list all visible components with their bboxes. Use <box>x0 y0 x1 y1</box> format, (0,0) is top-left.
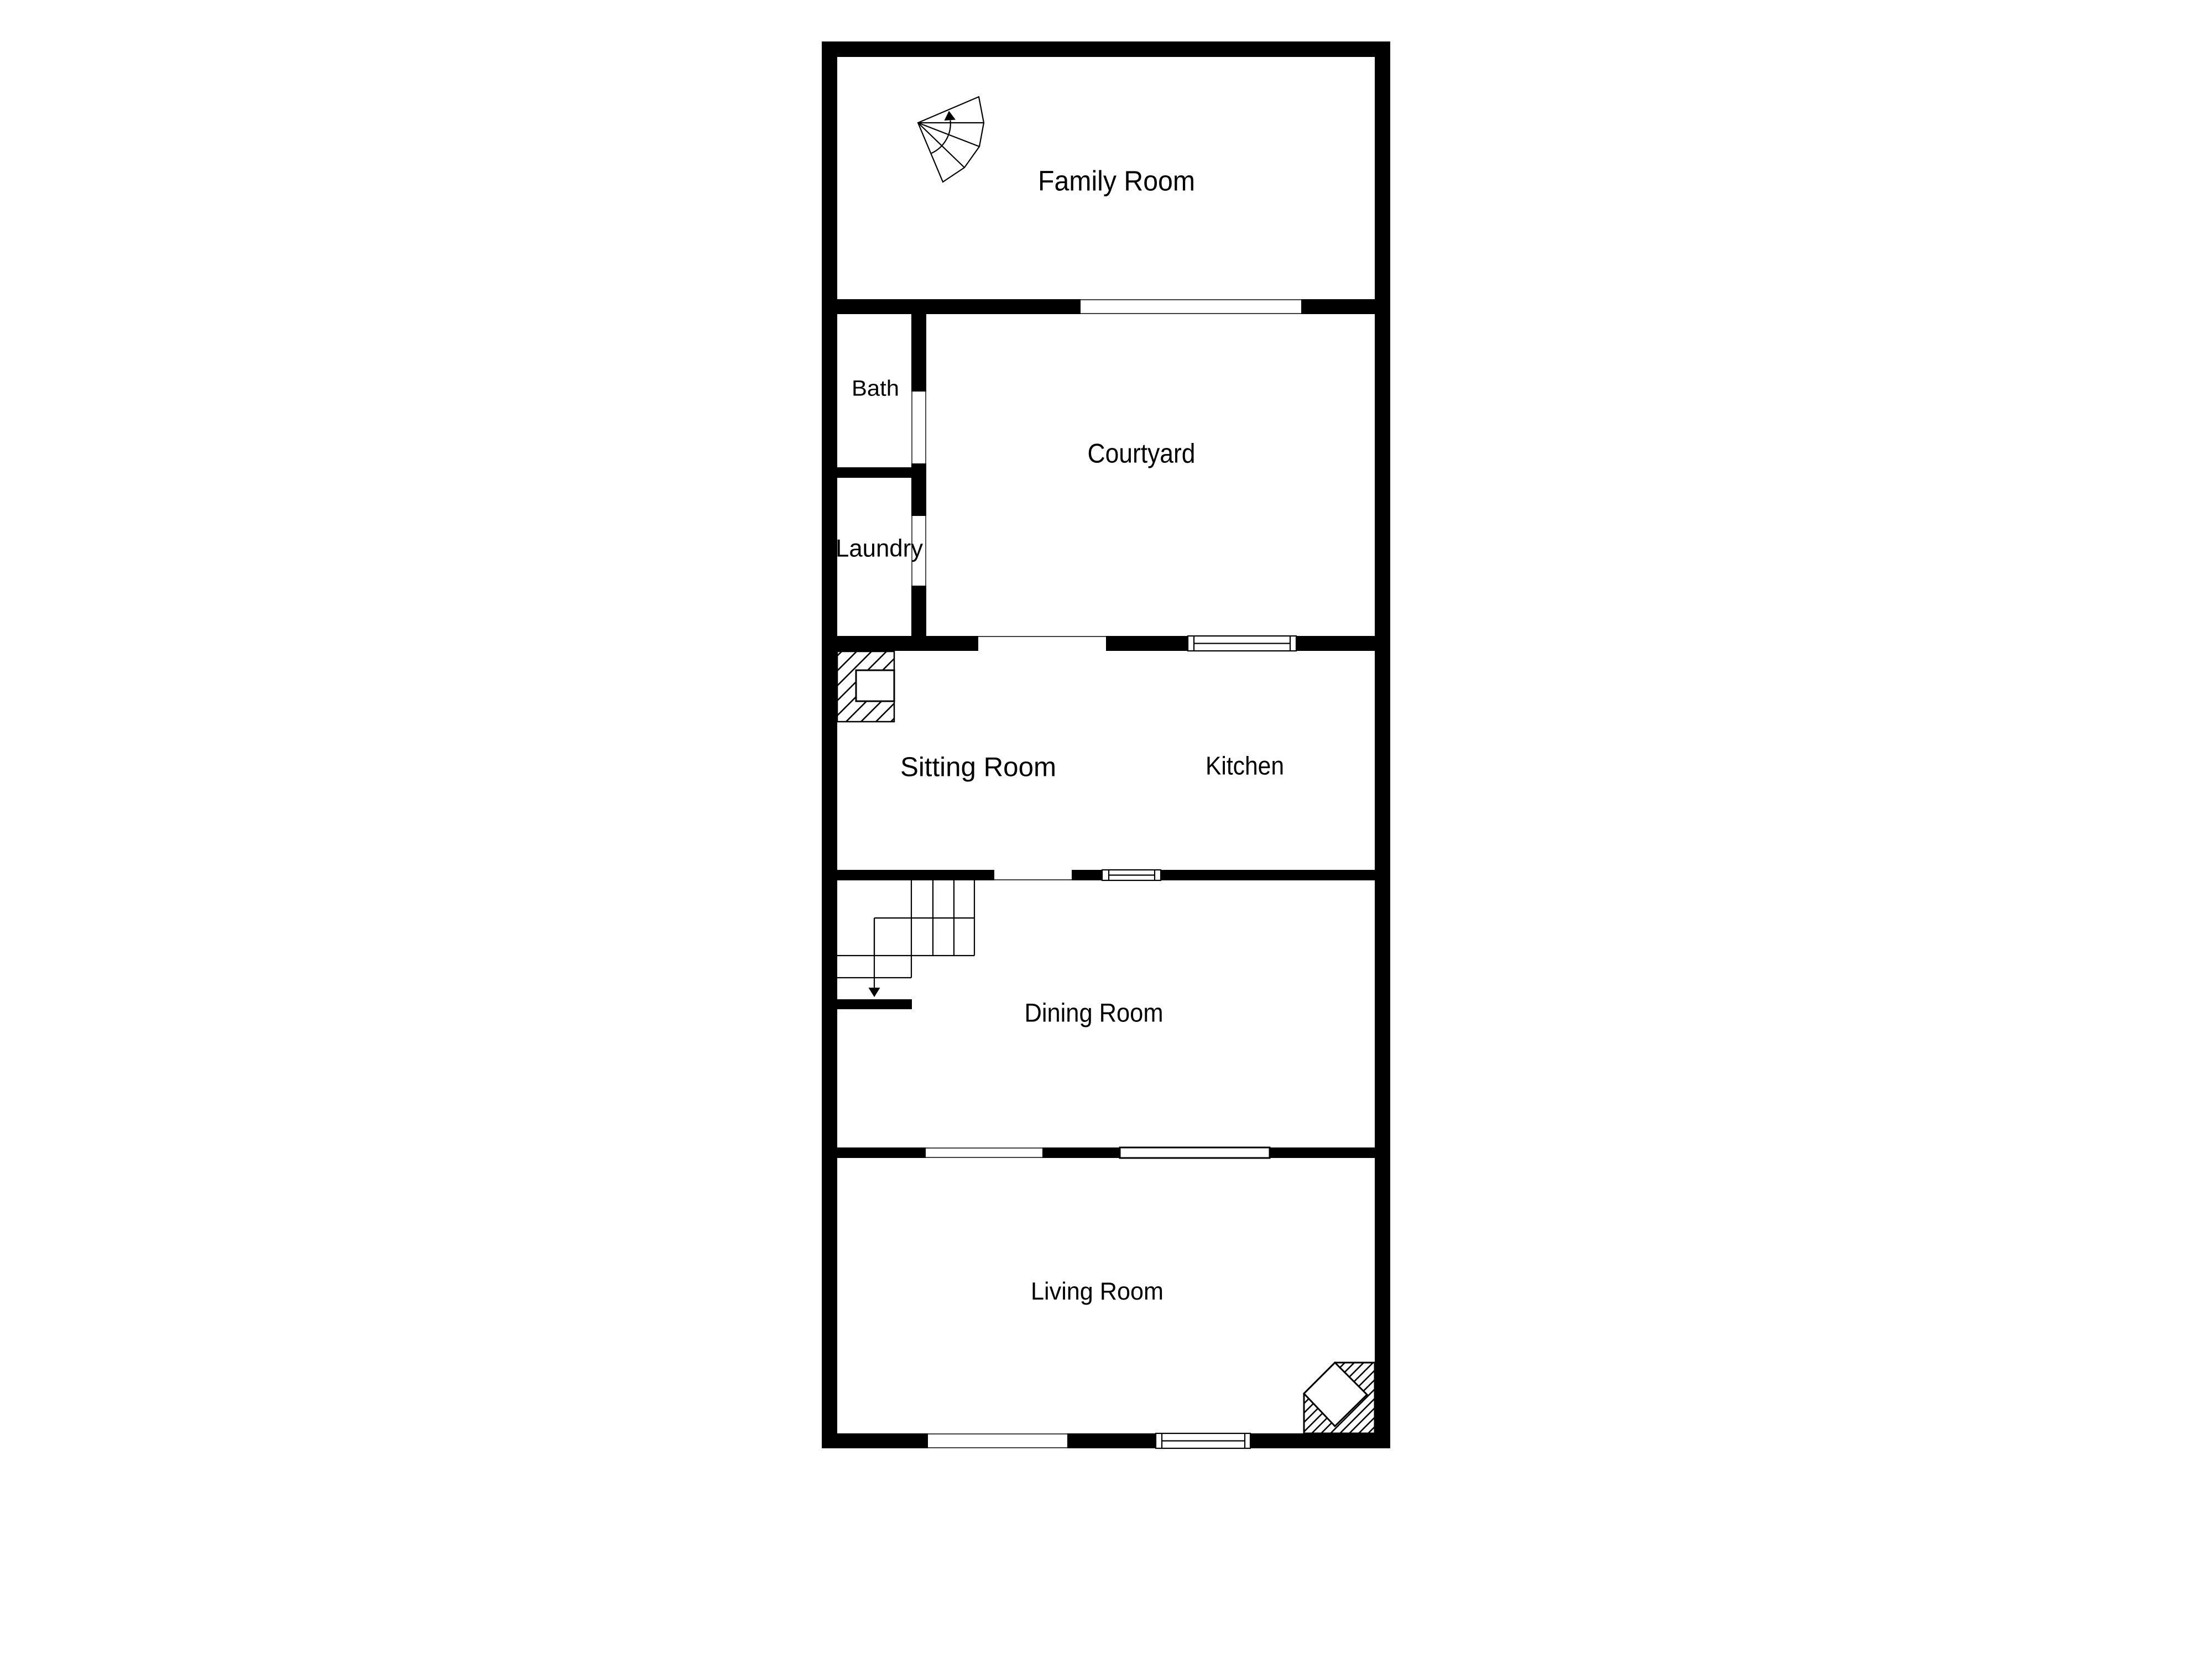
svg-text:Family Room: Family Room <box>1038 165 1195 197</box>
svg-text:Kitchen: Kitchen <box>1206 752 1284 780</box>
svg-text:Living Room: Living Room <box>1031 1278 1164 1305</box>
svg-text:Bath: Bath <box>852 377 899 401</box>
svg-text:Sitting Room: Sitting Room <box>900 752 1056 782</box>
svg-text:Laundry: Laundry <box>836 535 924 562</box>
svg-text:Dining Room: Dining Room <box>1025 999 1164 1028</box>
svg-text:Courtyard: Courtyard <box>1088 439 1196 468</box>
